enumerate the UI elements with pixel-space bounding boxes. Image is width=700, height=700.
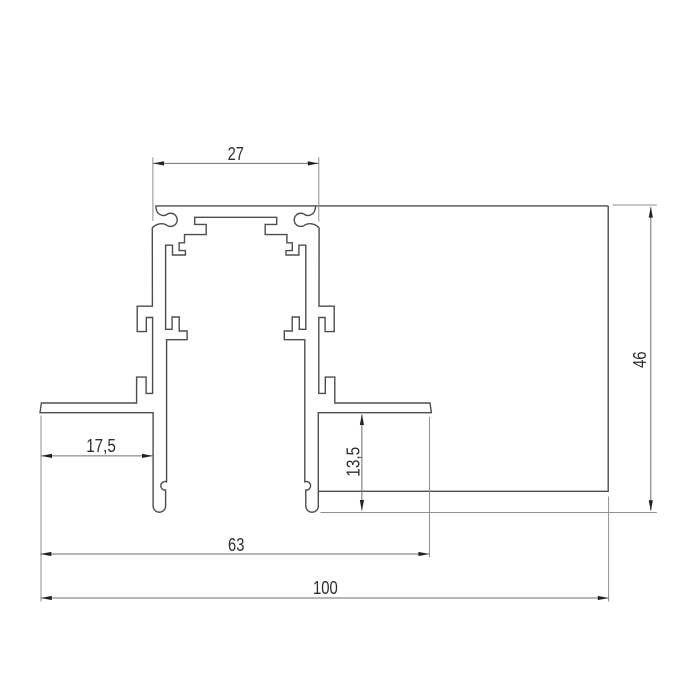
- svg-text:46: 46: [629, 352, 650, 369]
- svg-text:100: 100: [313, 577, 338, 598]
- svg-text:27: 27: [228, 143, 244, 164]
- svg-text:13,5: 13,5: [343, 447, 364, 477]
- svg-text:17,5: 17,5: [86, 435, 116, 456]
- svg-text:63: 63: [228, 534, 244, 555]
